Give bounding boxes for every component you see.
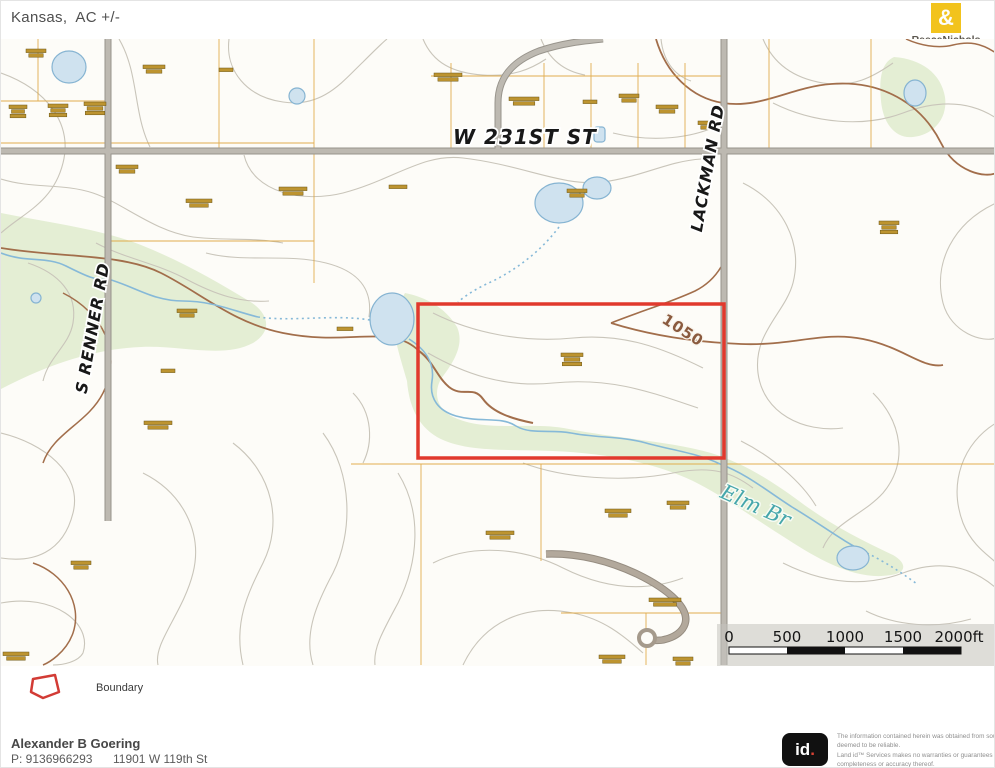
road-label-w-231st-st: W 231ST ST — [453, 125, 597, 149]
scale-tick-1500: 1500 — [884, 628, 922, 646]
land-id-logo-dot: . — [810, 740, 815, 759]
land-id-logo-text: id — [795, 740, 810, 759]
scale-bar-segment-dark-1 — [787, 647, 845, 654]
disclaimer-line: completeness or accuracy thereof. — [837, 760, 995, 768]
agent-name: Alexander B Goering — [11, 736, 140, 751]
disclaimer-line: Land id™ Services makes no warranties or… — [837, 751, 995, 760]
land-id-logo: id. — [782, 733, 828, 766]
scale-tick-0: 0 — [724, 628, 734, 646]
agent-phone: P: 9136966293 — [11, 752, 92, 766]
disclaimer-line: The information contained herein was obt… — [837, 732, 995, 741]
scale-tick-500: 500 — [773, 628, 802, 646]
disclaimer-line: deemed to be reliable. — [837, 741, 995, 750]
legend-label-boundary: Boundary — [96, 682, 143, 694]
topo-map-canvas: W 231ST ST LACKMAN RD S RENNER RD Elm Br… — [1, 1, 995, 768]
scale-tick-1000: 1000 — [826, 628, 864, 646]
disclaimer-text: The information contained herein was obt… — [837, 732, 995, 768]
agent-address: 11901 W 119th St — [113, 752, 207, 766]
scale-tick-2000ft: 2000ft — [934, 628, 983, 646]
scale-bar-segment-dark-2 — [903, 647, 961, 654]
boundary-swatch-icon — [27, 671, 63, 701]
scale-bar: 0 500 1000 1500 2000ft — [717, 624, 995, 666]
map-report-page: Kansas, AC +/- & ReeceNichols REAL ESTAT… — [0, 0, 995, 768]
